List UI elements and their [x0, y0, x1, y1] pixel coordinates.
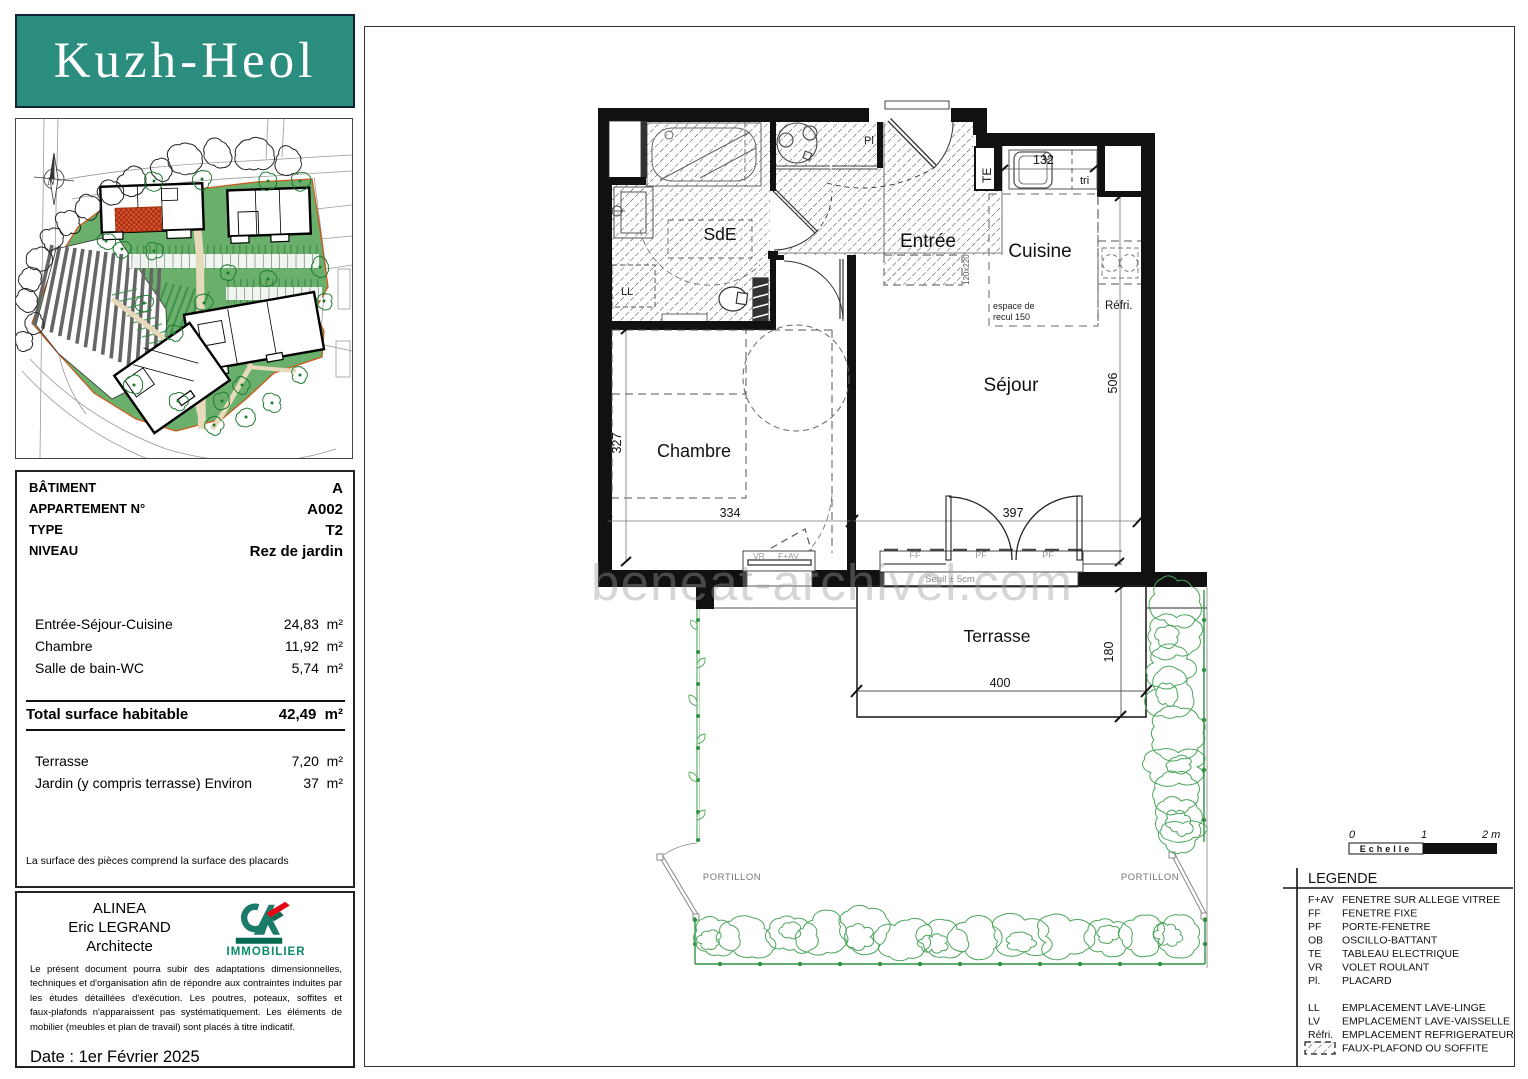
svg-text:2 m: 2 m	[1481, 829, 1500, 841]
svg-text:1: 1	[1421, 829, 1427, 841]
svg-text:EMPLACEMENT LAVE-VAISSELLE: EMPLACEMENT LAVE-VAISSELLE	[1342, 1016, 1510, 1028]
svg-text:PORTILLON: PORTILLON	[1121, 872, 1179, 883]
svg-text:EMPLACEMENT REFRIGERATEUR: EMPLACEMENT REFRIGERATEUR	[1342, 1029, 1514, 1041]
svg-text:VR: VR	[1308, 962, 1323, 974]
svg-text:LV: LV	[1308, 1016, 1320, 1028]
svg-text:327: 327	[610, 433, 624, 454]
svg-text:PORTILLON: PORTILLON	[703, 872, 761, 883]
svg-text:Réfri.: Réfri.	[1308, 1029, 1333, 1041]
svg-text:Réfri.: Réfri.	[1105, 300, 1132, 312]
svg-text:LL: LL	[621, 286, 633, 298]
svg-text:Séjour: Séjour	[984, 375, 1040, 396]
svg-text:LL: LL	[1308, 1002, 1320, 1014]
svg-text:beneat-archivel.com: beneat-archivel.com	[591, 554, 1073, 611]
svg-text:SdE: SdE	[703, 224, 736, 244]
svg-text:Cuisine: Cuisine	[1008, 241, 1071, 262]
svg-text:PF: PF	[1308, 921, 1321, 933]
svg-text:FF: FF	[1308, 908, 1321, 920]
svg-text:Entrée: Entrée	[900, 231, 956, 252]
svg-text:120x220: 120x220	[962, 254, 971, 285]
svg-text:PLACARD: PLACARD	[1342, 975, 1392, 987]
svg-text:FENETRE SUR ALLEGE VITREE: FENETRE SUR ALLEGE VITREE	[1342, 894, 1500, 906]
svg-text:LEGENDE: LEGENDE	[1308, 871, 1378, 887]
svg-text:Terrasse: Terrasse	[963, 626, 1030, 646]
svg-text:TE: TE	[1308, 948, 1321, 960]
svg-text:506: 506	[1106, 373, 1120, 394]
svg-text:F+AV: F+AV	[1308, 894, 1334, 906]
svg-text:OB: OB	[1308, 935, 1323, 947]
svg-text:EMPLACEMENT LAVE-LINGE: EMPLACEMENT LAVE-LINGE	[1342, 1002, 1486, 1014]
svg-text:132: 132	[1033, 153, 1054, 167]
svg-text:180: 180	[1102, 642, 1116, 663]
svg-text:OSCILLO-BATTANT: OSCILLO-BATTANT	[1342, 935, 1438, 947]
svg-text:PORTE-FENETRE: PORTE-FENETRE	[1342, 921, 1430, 933]
svg-text:tri: tri	[1080, 175, 1089, 187]
svg-text:334: 334	[720, 506, 741, 520]
svg-text:FAUX-PLAFOND OU SOFFITE: FAUX-PLAFOND OU SOFFITE	[1342, 1043, 1488, 1055]
svg-text:Echelle: Echelle	[1360, 844, 1413, 854]
svg-text:Pl: Pl	[864, 135, 874, 147]
svg-text:espace de: espace de	[993, 301, 1035, 311]
svg-text:TE: TE	[980, 168, 994, 183]
svg-text:0: 0	[1349, 829, 1356, 841]
svg-text:397: 397	[1003, 506, 1024, 520]
svg-text:400: 400	[990, 676, 1011, 690]
svg-text:Pl.: Pl.	[1308, 975, 1320, 987]
svg-text:Chambre: Chambre	[657, 441, 731, 461]
svg-text:VOLET ROULANT: VOLET ROULANT	[1342, 962, 1430, 974]
svg-text:recul 150: recul 150	[993, 312, 1030, 322]
svg-text:FENETRE FIXE: FENETRE FIXE	[1342, 908, 1417, 920]
svg-text:TABLEAU ELECTRIQUE: TABLEAU ELECTRIQUE	[1342, 948, 1459, 960]
